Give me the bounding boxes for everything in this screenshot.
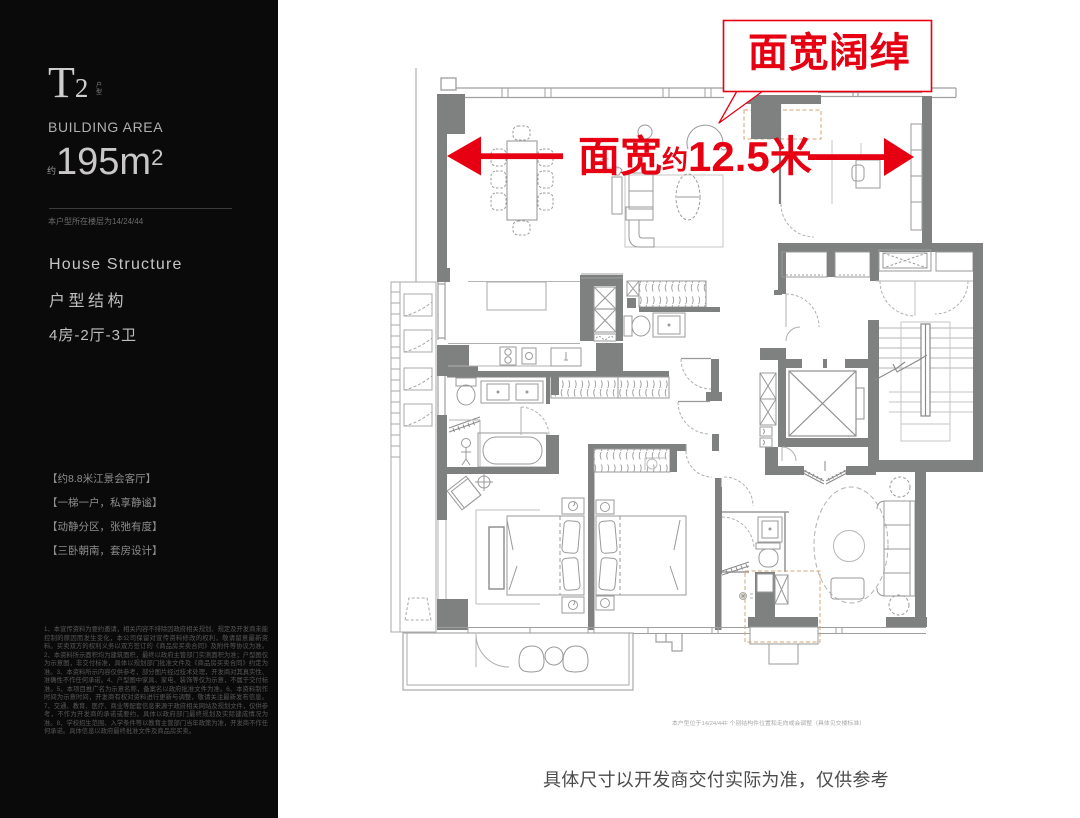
svg-text:面宽阔绰: 面宽阔绰: [748, 31, 910, 75]
svg-text:面宽约12.5米: 面宽约12.5米: [578, 133, 812, 180]
